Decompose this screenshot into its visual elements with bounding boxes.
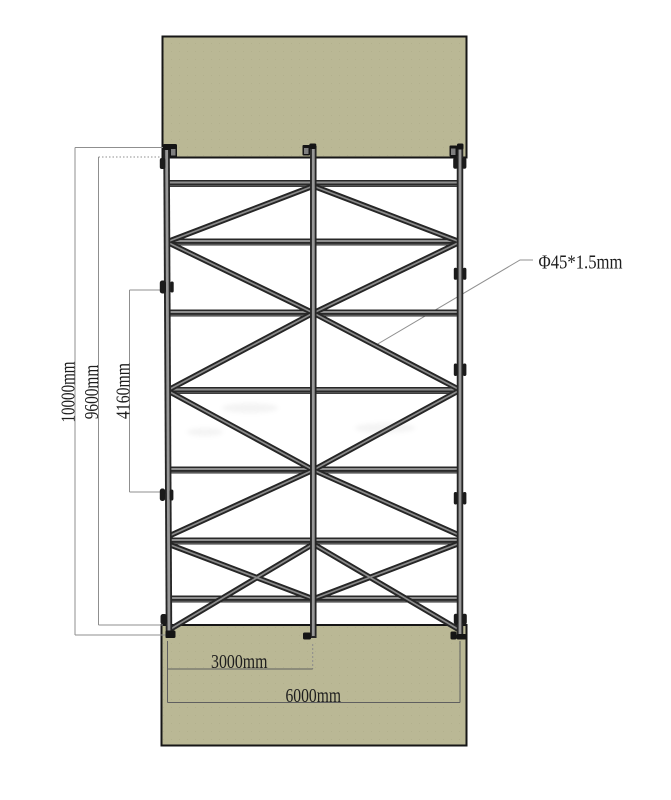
svg-text:9600mm: 9600mm <box>82 365 103 420</box>
svg-text:Φ45*1.5mm: Φ45*1.5mm <box>539 253 623 274</box>
svg-text:3000mm: 3000mm <box>211 652 268 673</box>
svg-text:6000mm: 6000mm <box>286 686 342 707</box>
svg-text:10000mm: 10000mm <box>59 362 80 423</box>
svg-text:4160mm: 4160mm <box>114 363 135 419</box>
